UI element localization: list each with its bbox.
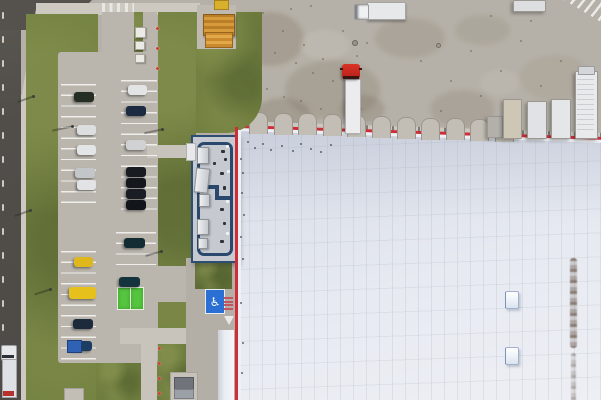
dirt-speck bbox=[540, 85, 542, 87]
roof-vent bbox=[213, 162, 216, 165]
roof-debris-streak bbox=[570, 258, 577, 348]
roof-bright-edge-left bbox=[238, 130, 241, 400]
dirt-speck bbox=[295, 62, 297, 64]
dirt-speck bbox=[500, 70, 502, 72]
blue-container bbox=[67, 340, 82, 353]
roof-edge-debris bbox=[320, 151, 322, 153]
roof-vent bbox=[226, 145, 229, 148]
truck-red-panel bbox=[3, 391, 14, 396]
roof-edge-debris bbox=[292, 150, 294, 152]
side-drive bbox=[143, 12, 157, 78]
lamp-post bbox=[32, 95, 35, 98]
red-bollard bbox=[156, 67, 159, 70]
road-dash bbox=[2, 324, 4, 331]
dirt-speck bbox=[420, 60, 422, 62]
lamp-post bbox=[160, 250, 163, 253]
roof-vent bbox=[221, 150, 225, 153]
ramp-arrow bbox=[224, 316, 234, 325]
car-white bbox=[77, 125, 96, 135]
truck-mirror bbox=[340, 68, 343, 70]
road-dash bbox=[2, 300, 4, 307]
manhole-cover bbox=[352, 40, 358, 46]
car-teal bbox=[119, 277, 140, 287]
red-stripe bbox=[224, 308, 233, 310]
car-black bbox=[126, 189, 146, 199]
road-dash bbox=[2, 12, 4, 19]
van-yellow bbox=[69, 287, 96, 299]
hvac-unit bbox=[197, 147, 209, 164]
roof-vent bbox=[220, 172, 224, 175]
hvac-unit bbox=[197, 219, 209, 235]
wheelchair-icon: ♿ bbox=[210, 296, 221, 308]
roof-edge-debris bbox=[242, 342, 244, 344]
red-bollard bbox=[158, 392, 161, 395]
roof-edge-debris bbox=[254, 147, 256, 149]
car-navy bbox=[73, 319, 93, 329]
concrete-pad-bottom bbox=[64, 388, 84, 400]
roof-vent bbox=[220, 208, 224, 211]
roof-debris-streak bbox=[571, 353, 576, 400]
manhole-cover bbox=[436, 43, 441, 48]
box-truck-white bbox=[354, 2, 404, 19]
roof-vent bbox=[224, 158, 227, 161]
truck-windshield bbox=[2, 355, 14, 358]
dirt-speck bbox=[356, 55, 358, 57]
red-bollard bbox=[158, 377, 161, 380]
dirt-stain bbox=[480, 70, 520, 95]
roof-edge-debris bbox=[240, 158, 242, 160]
trailer-top-right bbox=[513, 0, 546, 12]
dock-bay bbox=[397, 117, 416, 139]
red-stripe bbox=[224, 304, 233, 306]
dock-bay bbox=[446, 118, 465, 140]
dirt-speck bbox=[266, 88, 268, 90]
road-dash bbox=[2, 228, 4, 235]
skylight bbox=[505, 347, 519, 365]
roof-edge-debris bbox=[262, 143, 264, 145]
utility-box bbox=[135, 27, 146, 38]
dock-bay bbox=[372, 116, 391, 138]
dirt-speck bbox=[332, 80, 334, 82]
trailer-tan bbox=[503, 99, 522, 139]
utility-box bbox=[135, 54, 145, 63]
dirt-stain bbox=[375, 18, 445, 58]
red-bollard bbox=[156, 27, 159, 30]
road-dash bbox=[2, 84, 4, 91]
dirt-speck bbox=[342, 30, 344, 32]
green-eco-spot bbox=[117, 287, 131, 310]
truck-windshield bbox=[343, 76, 359, 79]
dirt-speck bbox=[440, 110, 442, 112]
roof-edge-debris bbox=[241, 372, 243, 374]
trailer-gray bbox=[487, 116, 503, 138]
roof-edge-debris bbox=[240, 302, 242, 304]
dirt-speck bbox=[520, 40, 522, 42]
roof-vent bbox=[223, 222, 226, 225]
hvac-unit bbox=[199, 194, 210, 207]
aerial-photo: ♿ bbox=[0, 0, 601, 400]
handicap-spot: ♿ bbox=[205, 289, 225, 314]
trailer-roof-ribs bbox=[577, 74, 594, 132]
hvac-unit bbox=[198, 238, 208, 249]
car-white bbox=[128, 85, 147, 95]
dock-bay bbox=[298, 113, 317, 135]
road-dash bbox=[2, 252, 4, 259]
warehouse-wall-strip bbox=[218, 330, 234, 400]
green-eco-spot bbox=[130, 287, 144, 310]
road-semi-truck bbox=[1, 345, 16, 400]
dock-bay bbox=[421, 118, 440, 140]
car-teal bbox=[124, 238, 145, 248]
dirt-speck bbox=[283, 96, 285, 98]
car-black bbox=[126, 200, 146, 210]
roof-edge-debris bbox=[242, 172, 244, 174]
roof-edge-debris bbox=[310, 148, 312, 150]
entrance-canopy bbox=[186, 143, 196, 161]
car-white bbox=[77, 145, 96, 155]
red-bollard bbox=[158, 362, 161, 365]
car-white bbox=[77, 180, 96, 190]
road-dash bbox=[2, 276, 4, 283]
dirt-stain bbox=[300, 30, 350, 60]
dirt-speck bbox=[450, 80, 452, 82]
red-stripe bbox=[224, 297, 233, 299]
dirt-stain bbox=[455, 15, 510, 45]
lamp-post bbox=[71, 125, 74, 128]
hatched-road-marking bbox=[552, 0, 601, 24]
roof-edge-debris bbox=[240, 236, 242, 238]
dirt-speck bbox=[282, 30, 284, 32]
dumpster bbox=[174, 389, 194, 399]
entrance-drive bbox=[102, 12, 134, 54]
dirt-speck bbox=[322, 58, 324, 60]
road-dash bbox=[2, 60, 4, 67]
car-navy bbox=[126, 106, 146, 116]
roof-vent bbox=[227, 170, 230, 173]
roof-edge-debris bbox=[243, 214, 245, 216]
dirt-speck bbox=[274, 52, 276, 54]
dirt-speck bbox=[490, 15, 492, 17]
road-dash bbox=[2, 156, 4, 163]
warehouse-roof bbox=[236, 125, 601, 400]
truck-mirror bbox=[359, 68, 362, 70]
lamp-post bbox=[29, 209, 32, 212]
car-silver bbox=[126, 140, 146, 150]
roof-edge-debris bbox=[247, 141, 249, 143]
red-stripe bbox=[224, 301, 233, 303]
road-dash bbox=[2, 36, 4, 43]
roof-edge-debris bbox=[242, 258, 244, 260]
dock-bay bbox=[274, 113, 293, 135]
dirt-speck bbox=[262, 12, 264, 14]
dock-bay bbox=[323, 114, 342, 136]
dirt-speck bbox=[310, 5, 312, 7]
dirt-speck bbox=[312, 72, 314, 74]
dirt-speck bbox=[300, 100, 302, 102]
truck-cab-white bbox=[354, 4, 369, 20]
trailer-white bbox=[527, 101, 547, 139]
roof-edge-debris bbox=[300, 143, 302, 145]
hvac-unit bbox=[194, 167, 211, 193]
dirt-speck bbox=[470, 50, 472, 52]
roof-vent bbox=[223, 186, 226, 190]
roof-edge-debris bbox=[270, 149, 272, 151]
skylight bbox=[505, 291, 519, 309]
lawn-building-south bbox=[195, 261, 232, 289]
roof-edge-debris bbox=[241, 192, 243, 194]
truck-box bbox=[367, 2, 406, 20]
dirt-speck bbox=[366, 42, 368, 44]
road-dash bbox=[2, 204, 4, 211]
utility-box bbox=[135, 41, 145, 50]
roof-vent bbox=[226, 232, 229, 235]
road-dash bbox=[2, 180, 4, 187]
pallet-stack bbox=[205, 32, 233, 48]
road-dash bbox=[2, 132, 4, 139]
road-dash bbox=[2, 108, 4, 115]
dirt-speck bbox=[290, 8, 292, 10]
semi-truck-red bbox=[342, 64, 360, 132]
roof-edge-debris bbox=[281, 145, 283, 147]
dirt-speck bbox=[320, 108, 322, 110]
car-black bbox=[126, 178, 146, 188]
red-bollard bbox=[158, 347, 161, 350]
car-silver bbox=[75, 168, 95, 178]
roof-vent bbox=[220, 240, 224, 243]
roof-edge-debris bbox=[330, 144, 332, 146]
car-black bbox=[126, 167, 146, 177]
lawn-bottom-left bbox=[96, 362, 143, 400]
dirt-speck bbox=[303, 44, 305, 46]
lamp-post bbox=[161, 128, 164, 131]
dirt-speck bbox=[530, 20, 532, 22]
footpath-vertical bbox=[141, 344, 157, 400]
yellow-crate bbox=[214, 0, 229, 10]
car-yellow bbox=[74, 257, 93, 267]
dirt-speck bbox=[560, 60, 562, 62]
truck-trailer bbox=[345, 79, 361, 134]
roof-vent bbox=[226, 200, 229, 203]
car-dark-green bbox=[74, 92, 94, 102]
lamp-post bbox=[49, 288, 52, 291]
office-roof-pattern-bar bbox=[215, 196, 232, 200]
trailer-white bbox=[551, 99, 571, 139]
stall-lines-right-lower bbox=[116, 232, 156, 265]
dirt-speck bbox=[480, 95, 482, 97]
red-bollard bbox=[156, 47, 159, 50]
trailer-reefer-unit bbox=[578, 66, 595, 75]
